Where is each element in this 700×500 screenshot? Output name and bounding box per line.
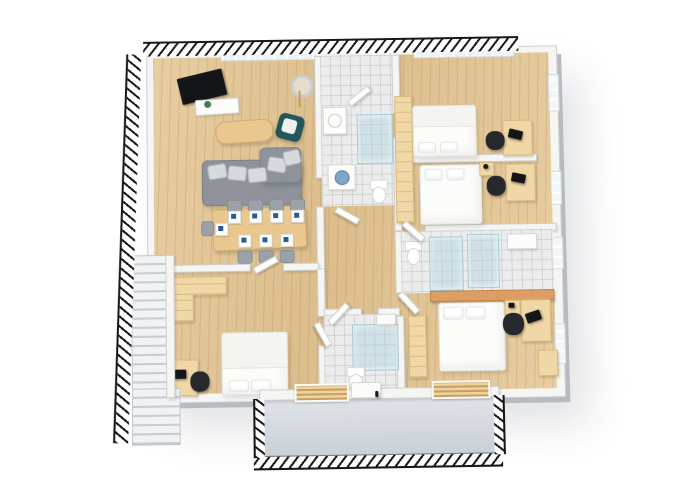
hatch-band-top: [143, 36, 518, 57]
cut-wall-hatching: [0, 0, 700, 500]
floorplan-3d-render: [0, 0, 700, 500]
hatch-band-left: [113, 54, 141, 443]
floorplan-canvas: [0, 0, 700, 500]
